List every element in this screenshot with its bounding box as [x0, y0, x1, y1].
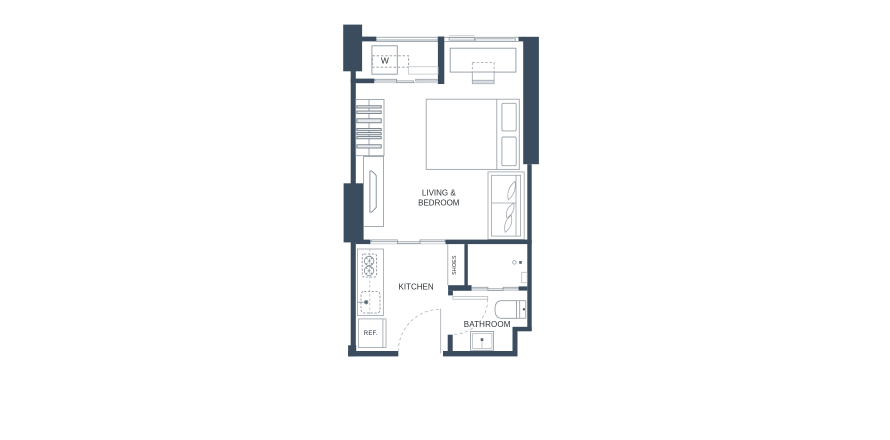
svg-text:W: W [381, 55, 389, 65]
svg-text:BEDROOM: BEDROOM [418, 199, 460, 208]
svg-text:REF.: REF. [364, 331, 378, 337]
svg-text:SHOES: SHOES [452, 255, 458, 275]
svg-text:KITCHEN: KITCHEN [399, 283, 434, 292]
svg-text:LIVING &: LIVING & [422, 188, 456, 197]
svg-text:BATHROOM: BATHROOM [464, 320, 511, 329]
